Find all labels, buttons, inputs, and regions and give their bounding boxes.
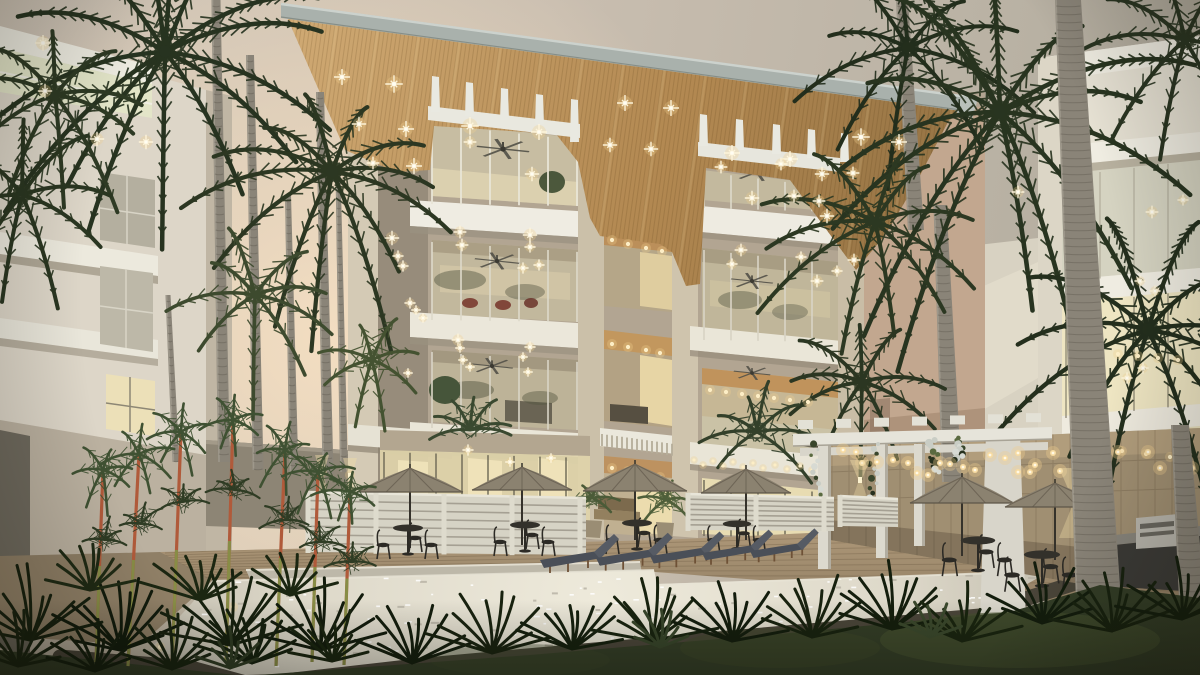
architectural-render-image: [0, 0, 1200, 675]
scene-canvas: [0, 0, 1200, 675]
vignette: [0, 0, 1200, 675]
